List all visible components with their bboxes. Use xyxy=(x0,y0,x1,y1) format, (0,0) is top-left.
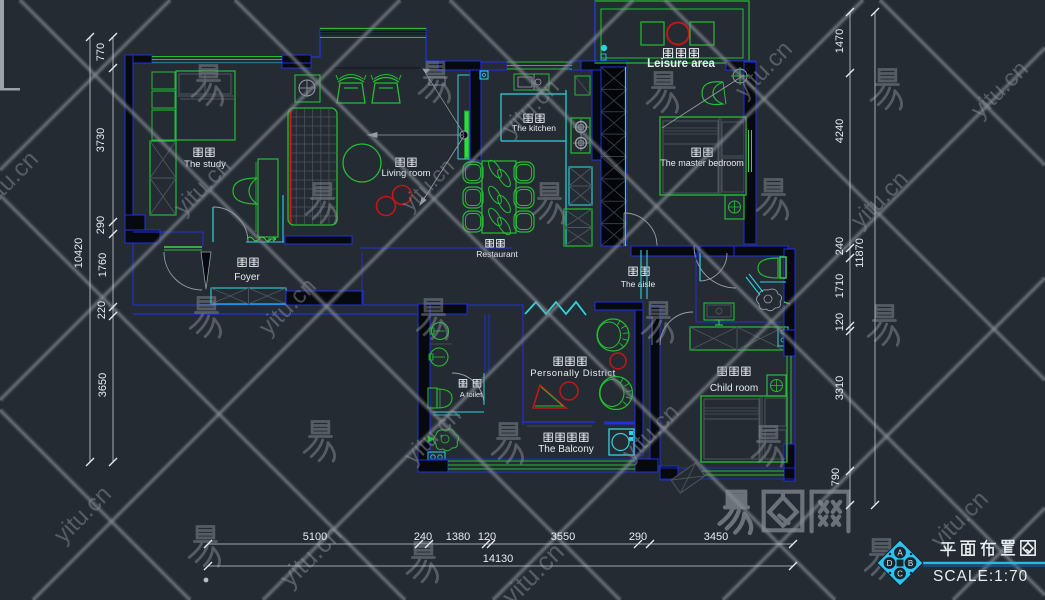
svg-text:240: 240 xyxy=(414,531,432,543)
svg-text:C: C xyxy=(897,570,903,579)
svg-text:4240: 4240 xyxy=(834,119,846,143)
svg-text:The Balcony: The Balcony xyxy=(538,444,594,455)
svg-text:770: 770 xyxy=(95,43,107,61)
svg-text:3650: 3650 xyxy=(97,373,109,397)
svg-text:11870: 11870 xyxy=(854,238,866,268)
svg-text:Foyer: Foyer xyxy=(234,272,260,283)
svg-text:B: B xyxy=(908,559,913,568)
svg-text:120: 120 xyxy=(834,313,846,331)
svg-text:220: 220 xyxy=(96,301,108,319)
svg-text:290: 290 xyxy=(629,531,647,543)
svg-text:290: 290 xyxy=(95,216,107,234)
svg-text:14130: 14130 xyxy=(483,553,514,565)
svg-text:10420: 10420 xyxy=(73,238,85,269)
svg-text:Child room: Child room xyxy=(710,383,758,394)
svg-text:1380: 1380 xyxy=(446,531,470,543)
svg-text:3730: 3730 xyxy=(95,128,107,152)
svg-text:A: A xyxy=(897,549,903,558)
svg-text:120: 120 xyxy=(478,531,496,543)
svg-text:Leisure area: Leisure area xyxy=(647,58,715,70)
svg-text:3550: 3550 xyxy=(551,531,575,543)
svg-text:1470: 1470 xyxy=(834,29,846,53)
svg-text:3450: 3450 xyxy=(704,531,728,543)
svg-text:SCALE:1:70: SCALE:1:70 xyxy=(933,568,1028,585)
svg-text:3310: 3310 xyxy=(834,376,846,400)
svg-text:D: D xyxy=(887,559,893,568)
svg-text:790: 790 xyxy=(830,468,842,486)
svg-text:1760: 1760 xyxy=(97,253,109,277)
svg-text:1710: 1710 xyxy=(834,274,846,298)
svg-text:The aisle: The aisle xyxy=(621,279,656,289)
svg-text:240: 240 xyxy=(834,237,846,255)
svg-text:5100: 5100 xyxy=(303,531,327,543)
